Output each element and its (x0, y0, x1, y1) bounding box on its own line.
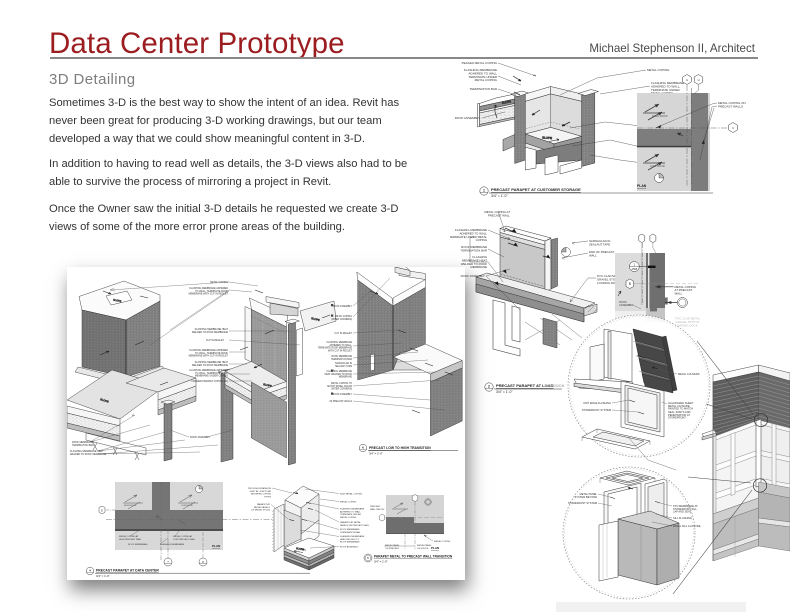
svg-text:HEAT WELDED TO: HEAT WELDED TO (340, 538, 359, 541)
svg-text:METAL COPING: METAL COPING (647, 68, 670, 72)
svg-text:FLASHING MEMBRANE: FLASHING MEMBRANE (340, 535, 365, 538)
svg-text:HEAT WELDED TO ROOF: HEAT WELDED TO ROOF (325, 373, 353, 376)
svg-text:H: H (698, 78, 700, 82)
svg-text:PARAPET AT: PARAPET AT (257, 503, 271, 506)
svg-text:TERMINATION BAR: TERMINATION BAR (72, 444, 94, 447)
svg-text:LOW PRECAST WALL: LOW PRECAST WALL (173, 538, 196, 541)
svg-text:METAL COPING AT: METAL COPING AT (173, 535, 193, 538)
svg-text:ADHERED TO WALL: ADHERED TO WALL (340, 510, 362, 513)
svg-text:PANEL SILL CLOSURE: PANEL SILL CLOSURE (673, 524, 701, 528)
svg-text:TERMINATION BAR: TERMINATION BAR (331, 358, 352, 361)
svg-text:SARNACLAD IN: SARNACLAD IN (335, 362, 352, 365)
svg-text:TERMINATION BAR: TERMINATION BAR (340, 531, 360, 534)
svg-text:WELDED TO ROOF MEMBRANE: WELDED TO ROOF MEMBRANE (192, 331, 229, 334)
svg-text:SEALANT TAPE: SEALANT TAPE (589, 242, 610, 246)
svg-text:3/4" = 1'-0": 3/4" = 1'-0" (374, 560, 388, 564)
svg-text:ROOF ASSEMBLY: ROOF ASSEMBLY (333, 393, 353, 396)
svg-text:HIGH PRECAST WALL: HIGH PRECAST WALL (119, 538, 143, 541)
svg-text:ON STUDS: ON STUDS (417, 548, 429, 550)
svg-text:PRECAST PARAPET AT DATA CENTER: PRECAST PARAPET AT DATA CENTER (96, 569, 159, 573)
svg-text:SILL FLASHING: SILL FLASHING (673, 516, 692, 520)
svg-text:MEMBRANE: MEMBRANE (339, 376, 353, 379)
svg-text:WELDED TO ROOF MEMBRANE: WELDED TO ROOF MEMBRANE (192, 364, 229, 367)
svg-text:CUT IN REGLET: CUT IN REGLET (335, 333, 353, 335)
svg-text:WELDED TO ROOF MEMBRANE: WELDED TO ROOF MEMBRANE (70, 453, 107, 456)
svg-text:MEMBRANE WITH CUT IN REGLET: MEMBRANE WITH CUT IN REGLET (189, 355, 229, 358)
svg-text:HIGH ROOF: HIGH ROOF (652, 114, 668, 118)
svg-text:LAP AND SEAL: LAP AND SEAL (673, 510, 692, 514)
svg-text:SIDE METAL COPING: SIDE METAL COPING (340, 493, 362, 496)
svg-text:ROOF MEMBRANE: ROOF MEMBRANE (128, 543, 148, 546)
svg-text:UNIT EDGE FLASHING: UNIT EDGE FLASHING (583, 401, 611, 405)
svg-text:ROOF MEMBRANE: ROOF MEMBRANE (331, 355, 352, 358)
svg-text:ROOF MEMBRANE: ROOF MEMBRANE (340, 541, 360, 544)
svg-text:3/4" = 1'-0": 3/4" = 1'-0" (496, 390, 513, 394)
svg-text:CUT IN REGLET: CUT IN REGLET (206, 339, 225, 342)
svg-text:COPING: COPING (476, 238, 488, 242)
svg-text:PRECAST: PRECAST (370, 505, 381, 508)
svg-text:METAL COPING: METAL COPING (335, 315, 352, 318)
svg-text:WALL: WALL (589, 253, 597, 257)
svg-text:METAL COPING: METAL COPING (475, 78, 498, 82)
svg-text:WITH CUT IN REGLET: WITH CUT IN REGLET (328, 350, 353, 352)
svg-text:FLASHING MEMBRANE: FLASHING MEMBRANE (327, 370, 353, 373)
svg-text:ROOF ASSEMBLY: ROOF ASSEMBLY (461, 274, 485, 278)
svg-text:METAL COPING: METAL COPING (340, 516, 357, 519)
svg-text:SYSTEM BEYOND: SYSTEM BEYOND (575, 495, 597, 499)
svg-text:MEMBRANE WITH CUT IN REGLET: MEMBRANE WITH CUT IN REGLET (189, 293, 229, 296)
svg-text:MEMBRANE UNDER COPING: MEMBRANE UNDER COPING (195, 375, 228, 378)
svg-text:FRAMED PARAPET COPING (IN): FRAMED PARAPET COPING (IN) (192, 380, 229, 383)
svg-text:MEMBRANE: MEMBRANE (470, 265, 487, 269)
svg-text:PAINTED TO MATCH: PAINTED TO MATCH (668, 407, 693, 411)
svg-text:STOREFRONT SYSTEM: STOREFRONT SYSTEM (582, 408, 611, 412)
svg-text:G: G (686, 78, 688, 82)
svg-text:PRECAST PARAPET AT CUSTOMER ST: PRECAST PARAPET AT CUSTOMER STORAGE (491, 187, 581, 192)
svg-text:1: 1 (483, 189, 485, 193)
svg-text:TERMINATE UNDER: TERMINATE UNDER (340, 513, 361, 516)
svg-text:C: C (732, 126, 734, 130)
svg-text:METAL PANEL: METAL PANEL (385, 544, 400, 547)
svg-text:TERMINATION BAR: TERMINATION BAR (470, 87, 498, 91)
svg-text:PRECAST LOW TO HIGH TRANSITION: PRECAST LOW TO HIGH TRANSITION (369, 446, 431, 450)
svg-text:E: E (101, 508, 103, 512)
svg-text:3/4" = 1'-0": 3/4" = 1'-0" (491, 194, 508, 198)
svg-text:A508: A508 (632, 268, 638, 271)
svg-text:PROVIDE EXPANSION: PROVIDE EXPANSION (248, 487, 271, 490)
svg-text:METAL COPING TO: METAL COPING TO (331, 382, 352, 385)
svg-text:TERMINATE ROOF MEMBRANE: TERMINATE ROOF MEMBRANE (318, 347, 353, 350)
svg-text:ROOF ASSEMBLY: ROOF ASSEMBLY (455, 116, 480, 120)
svg-text:3/4" = 1'-0": 3/4" = 1'-0" (369, 452, 383, 456)
svg-text:WALL BELOW: WALL BELOW (370, 508, 385, 511)
svg-text:(MITER CORNERS): (MITER CORNERS) (331, 319, 352, 321)
svg-text:FLASHING MEMBRANE: FLASHING MEMBRANE (327, 341, 353, 344)
svg-text:SEALANT TAPE: SEALANT TAPE (335, 365, 352, 368)
svg-text:FLASHING MEMBRANE: FLASHING MEMBRANE (160, 543, 185, 546)
svg-text:ON PRECAST: ON PRECAST (385, 547, 400, 550)
svg-text:SLOPE: SLOPE (542, 136, 552, 141)
svg-text:PARAPET METAL TO PRECAST WALL: PARAPET METAL TO PRECAST WALL TRANSITION (374, 555, 453, 559)
svg-text:PLAN: PLAN (212, 544, 220, 548)
svg-text:(MITER CORNERS): (MITER CORNERS) (331, 389, 352, 391)
svg-text:STOREFRONT: STOREFRONT (668, 416, 686, 420)
svg-text:PEAKED METAL COPING: PEAKED METAL COPING (462, 61, 498, 65)
svg-text:2: 2 (488, 385, 490, 389)
svg-text:LOW ROOF: LOW ROOF (650, 164, 666, 168)
svg-text:ROOF ASSEMBLY: ROOF ASSEMBLY (333, 305, 353, 308)
svg-text:FLASHING MEMBRANE: FLASHING MEMBRANE (340, 508, 365, 511)
svg-text:(W METAL STUDS: (W METAL STUDS (252, 509, 271, 512)
svg-text:PRECAST WALLS: PRECAST WALLS (718, 104, 743, 108)
svg-text:METAL COPING AT: METAL COPING AT (119, 535, 139, 538)
svg-text:HIGH ROOF: HIGH ROOF (124, 505, 137, 507)
svg-text:ADHERED TO WALL,: ADHERED TO WALL, (330, 344, 353, 347)
svg-text:STOREFRONT SYSTEM: STOREFRONT SYSTEM (568, 501, 597, 505)
svg-text:ROOF ASSEMBLY: ROOF ASSEMBLY (340, 546, 359, 549)
svg-text:WALL: WALL (675, 292, 683, 296)
svg-text:JOINT AT JUNCTURE: JOINT AT JUNCTURE (249, 490, 271, 493)
svg-text:METAL COPING: METAL COPING (434, 540, 451, 543)
svg-text:ROOF ASSEMBLY: ROOF ASSEMBLY (190, 436, 211, 439)
svg-text:BETWEEN COPING: BETWEEN COPING (251, 494, 271, 496)
svg-text:PLAN: PLAN (431, 546, 439, 550)
svg-text:PANELS (IN PRECAST WALL: PANELS (IN PRECAST WALL (340, 524, 370, 527)
svg-text:METAL LOUVERS: METAL LOUVERS (678, 372, 700, 376)
svg-text:LOW ROOF: LOW ROOF (181, 505, 194, 507)
svg-text:TYPES: TYPES (264, 496, 272, 498)
svg-text:60 PRECAST WALLS: 60 PRECAST WALLS (330, 400, 353, 403)
svg-text:ROOF MEMBRANE: ROOF MEMBRANE (340, 528, 360, 531)
svg-text:MATCH PANEL COLOR: MATCH PANEL COLOR (327, 385, 352, 388)
svg-text:METAL PANELS: METAL PANELS (254, 506, 271, 509)
svg-text:PARAPET AT METAL: PARAPET AT METAL (340, 521, 362, 524)
svg-text:METAL COPING: METAL COPING (340, 501, 357, 504)
svg-text:3/4" = 1'-0": 3/4" = 1'-0" (96, 574, 110, 578)
svg-text:PLAN: PLAN (637, 184, 647, 188)
svg-text:TERMINATION BAR: TERMINATION BAR (461, 248, 487, 252)
svg-text:B: B (629, 282, 631, 286)
